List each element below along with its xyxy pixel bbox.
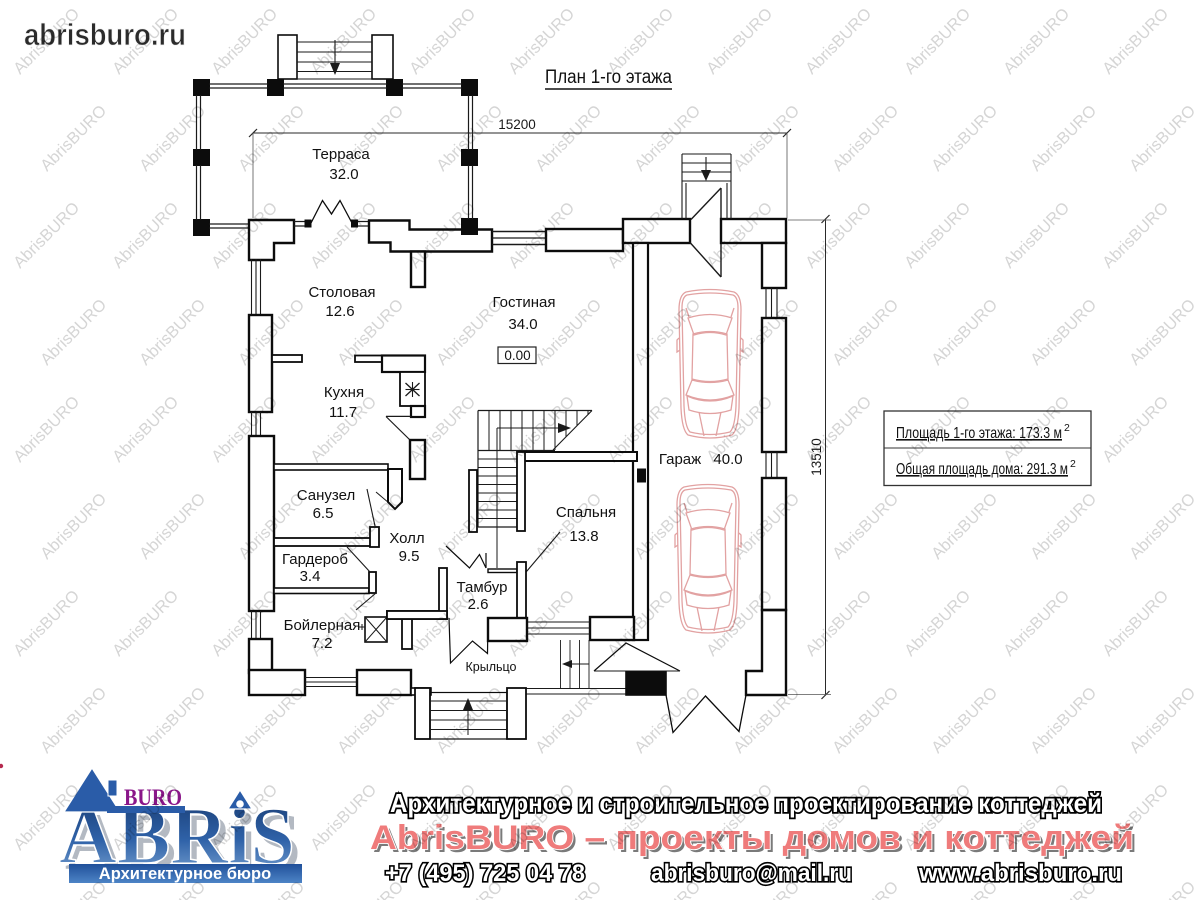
svg-text:15200: 15200 — [498, 117, 536, 132]
svg-text:+7 (495) 725 04 78: +7 (495) 725 04 78 — [385, 860, 585, 887]
svg-text:6.5: 6.5 — [313, 505, 334, 522]
svg-text:12.6: 12.6 — [325, 303, 354, 320]
svg-text:Общая площадь дома: 291.3 м: Общая площадь дома: 291.3 м — [896, 461, 1068, 478]
svg-text:3.4: 3.4 — [300, 568, 321, 585]
svg-text:34.0: 34.0 — [508, 316, 537, 333]
svg-text:abrisburo@mail.ru: abrisburo@mail.ru — [651, 860, 852, 887]
svg-text:Столовая: Столовая — [308, 284, 375, 301]
svg-text:2: 2 — [1064, 422, 1070, 434]
svg-text:Архитектурное бюро: Архитектурное бюро — [99, 865, 271, 883]
svg-text:Холл: Холл — [389, 530, 424, 547]
svg-text:0.00: 0.00 — [504, 348, 530, 363]
svg-text:2: 2 — [1070, 458, 1076, 470]
svg-text:Кухня: Кухня — [324, 384, 364, 401]
svg-text:Гараж: Гараж — [659, 451, 701, 468]
svg-text:Крыльцо: Крыльцо — [466, 660, 517, 674]
svg-text:9.5: 9.5 — [399, 548, 420, 565]
